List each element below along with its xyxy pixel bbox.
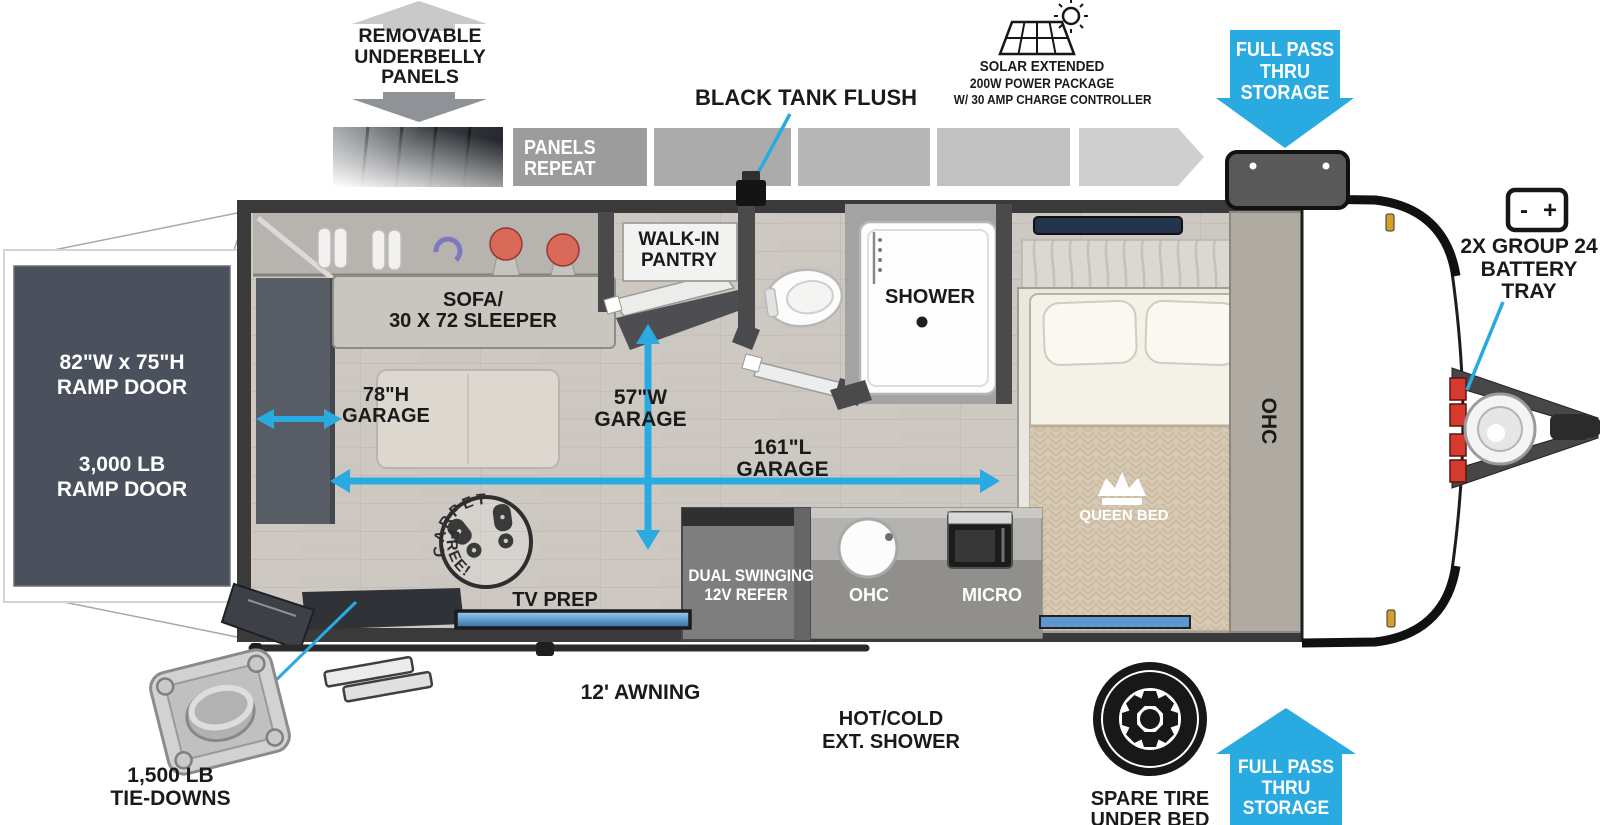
spare-tire-icon	[1093, 662, 1207, 776]
ramp-opening-shadow	[256, 278, 335, 524]
floorplan-diagram: CARPET FREE! - +	[0, 0, 1600, 825]
full-pass-thru-top-label: FULL PASS THRU STORAGE	[1227, 40, 1344, 105]
entry-steps	[324, 654, 432, 705]
roof-storage-box	[1227, 152, 1348, 208]
walk-in-pantry-label: WALK-IN PANTRY	[622, 229, 736, 271]
underbelly-panel-photo	[333, 127, 503, 187]
awning-rail	[250, 642, 866, 656]
svg-text:-: -	[1520, 197, 1528, 224]
microwave-label: MICRO	[944, 586, 1040, 605]
ohc-kitchen-label: OHC	[840, 586, 898, 605]
queen-bed-label: QUEEN BED	[1060, 508, 1188, 524]
removable-underbelly-label: REMOVABLE UNDERBELLY PANELS	[340, 26, 500, 88]
refrigerator-label: DUAL SWINGING 12V REFER	[688, 566, 803, 604]
marker-light	[1387, 610, 1395, 627]
ramp-door-panel	[4, 250, 242, 602]
battery-tray-line	[1467, 302, 1503, 390]
svg-text:+: +	[1543, 197, 1557, 224]
ohc-bedroom-label: OHC	[1257, 396, 1279, 446]
garage-length-label: 161"L GARAGE	[700, 437, 865, 481]
shower-label: SHOWER	[880, 287, 980, 308]
floorplan-graphics: CARPET FREE! - +	[0, 0, 1600, 825]
spare-tire-label: SPARE TIRE UNDER BED	[1082, 789, 1218, 825]
battery-tray-label: 2X GROUP 24 BATTERY TRAY	[1455, 236, 1600, 304]
tie-downs-label: 1,500 LB TIE-DOWNS	[98, 764, 243, 810]
solar-package-label: SOLAR EXTENDED 200W POWER PACKAGE W/ 30 …	[954, 59, 1130, 107]
garage-height-label: 78"H GARAGE	[336, 385, 436, 427]
battery-icon: - +	[1508, 190, 1566, 230]
microwave-icon	[948, 512, 1012, 568]
tie-down-plate-icon	[147, 647, 292, 778]
tv-prep-window	[456, 611, 690, 628]
sofa-sleeper-label: SOFA/ 30 X 72 SLEEPER	[378, 290, 568, 332]
tongue-a-frame	[1450, 368, 1600, 488]
ramp-door-size-label: 82"W x 75"H RAMP DOOR	[14, 350, 230, 400]
black-tank-flush-label: BLACK TANK FLUSH	[695, 86, 910, 109]
tv-prep-label: TV PREP	[500, 590, 610, 611]
pillow	[1043, 300, 1137, 365]
ramp-door-weight-label: 3,000 LB RAMP DOOR	[14, 452, 230, 502]
bedroom-window	[1034, 217, 1182, 234]
garage-width-label: 57"W GARAGE	[588, 387, 693, 431]
marker-light	[1386, 214, 1394, 231]
sink-icon	[839, 519, 897, 577]
bedroom-side-window	[1040, 616, 1190, 628]
propane-tank-icon	[1465, 394, 1535, 464]
solar-panel-icon	[1000, 0, 1088, 54]
full-pass-thru-bottom-label: FULL PASS THRU STORAGE	[1228, 757, 1343, 819]
awning-label: 12' AWNING	[558, 682, 723, 704]
ext-shower-label: HOT/COLD EXT. SHOWER	[806, 708, 976, 754]
pillow	[1145, 300, 1239, 365]
panels-repeat-label: PANELS REPEAT	[524, 138, 636, 180]
front-cap	[1302, 199, 1463, 643]
